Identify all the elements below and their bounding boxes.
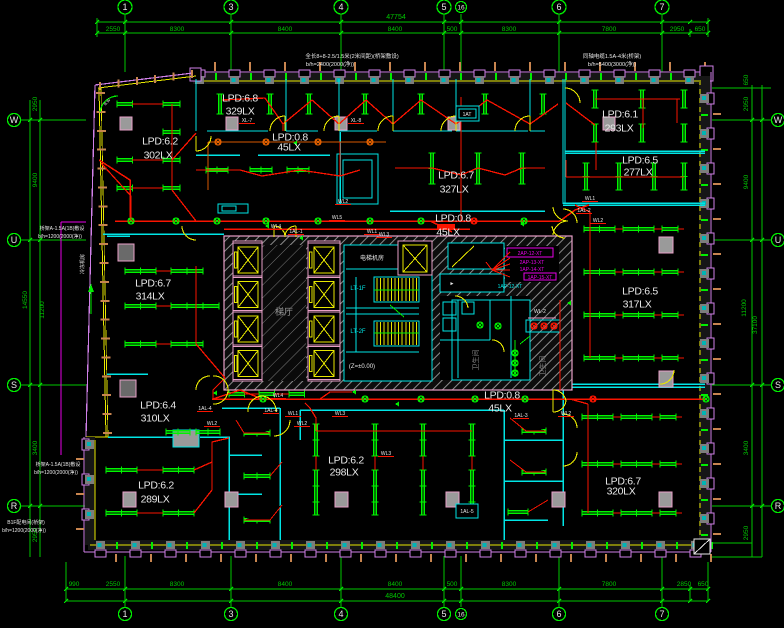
svg-text:500: 500 [447,26,458,33]
svg-text:冷冻机房: 冷冻机房 [79,254,86,274]
svg-text:4: 4 [338,2,343,12]
svg-text:14550: 14550 [22,291,29,309]
svg-text:3: 3 [228,609,233,619]
svg-text:8300: 8300 [502,581,517,588]
svg-text:U: U [11,235,18,245]
svg-text:3400: 3400 [743,440,750,455]
svg-text:310LX: 310LX [141,413,170,425]
svg-text:R: R [11,501,18,511]
svg-text:WL-2: WL-2 [534,309,546,315]
svg-text:298LX: 298LX [330,467,359,479]
svg-text:7800: 7800 [602,581,617,588]
svg-text:R: R [775,501,782,511]
svg-text:2850: 2850 [677,581,692,588]
svg-text:7: 7 [659,2,664,12]
svg-text:LPD:6.2: LPD:6.2 [138,480,174,492]
svg-text:2AP-13-XT: 2AP-13-XT [520,260,545,266]
svg-text:293LX: 293LX [605,123,634,135]
svg-text:11200: 11200 [741,299,748,317]
svg-text:全长8+8-2.5/1.5米(2米间距)(桥架敷设): 全长8+8-2.5/1.5米(2米间距)(桥架敷设) [305,52,399,60]
svg-text:B1F配电间(桥架): B1F配电间(桥架) [7,519,45,526]
svg-text:2950: 2950 [670,26,685,33]
svg-text:W: W [774,115,783,125]
svg-text:1: 1 [122,2,127,12]
svg-text:8400: 8400 [388,26,403,33]
svg-text:LPD:6.5: LPD:6.5 [622,286,658,298]
svg-text:4: 4 [338,609,343,619]
svg-text:320LX: 320LX [607,486,636,498]
svg-text:W: W [10,115,19,125]
svg-text:2950: 2950 [32,96,39,111]
svg-text:45LX: 45LX [436,227,460,239]
svg-text:同轴电缆1.5A-4米(桥架): 同轴电缆1.5A-4米(桥架) [583,52,642,60]
svg-text:2950: 2950 [743,96,750,111]
svg-text:1AT: 1AT [463,112,472,118]
svg-text:3400: 3400 [32,440,39,455]
svg-text:45LX: 45LX [488,403,512,415]
svg-text:S: S [775,380,781,390]
svg-text:2550: 2550 [106,581,121,588]
svg-text:b/h=2400(2000(净)): b/h=2400(2000(净)) [306,60,354,68]
svg-text:2550: 2550 [106,26,121,33]
svg-text:卫生间: 卫生间 [538,356,547,377]
svg-text:LT-1F: LT-1F [350,286,366,292]
svg-text:b/h=1200(2000(净)): b/h=1200(2000(净)) [2,527,46,534]
svg-text:LPD:0.8: LPD:0.8 [435,213,471,225]
svg-text:327LX: 327LX [440,184,469,196]
svg-text:LPD:6.1: LPD:6.1 [602,109,638,121]
svg-text:7800: 7800 [602,26,617,33]
svg-text:LPD:6.7: LPD:6.7 [438,170,474,182]
svg-text:650: 650 [743,74,750,85]
svg-text:S: S [11,380,17,390]
svg-text:48400: 48400 [385,593,405,600]
svg-text:11200: 11200 [39,301,46,319]
svg-text:317LX: 317LX [623,299,652,311]
svg-text:桥架A-1.5A(1B)敷设: 桥架A-1.5A(1B)敷设 [40,225,85,232]
svg-text:289LX: 289LX [141,494,170,506]
svg-text:650: 650 [698,581,709,588]
svg-text:►: ► [450,281,455,287]
svg-text:47754: 47754 [386,14,406,21]
svg-text:b/h=1200(2000(净)): b/h=1200(2000(净)) [38,233,82,240]
svg-text:1AP-14-XT: 1AP-14-XT [520,267,545,273]
svg-text:1: 1 [122,609,127,619]
svg-text:2950: 2950 [743,525,750,540]
svg-text:9400: 9400 [743,174,750,189]
svg-text:7: 7 [659,609,664,619]
svg-text:LPD:6.5: LPD:6.5 [622,155,658,167]
svg-text:6: 6 [556,2,561,12]
svg-text:8400: 8400 [278,581,293,588]
svg-text:16: 16 [457,5,465,12]
svg-text:3: 3 [228,2,233,12]
svg-text:LPD:6.2: LPD:6.2 [142,136,178,148]
svg-text:5: 5 [441,2,446,12]
svg-text:8300: 8300 [170,581,185,588]
svg-text:LPD:6.4: LPD:6.4 [140,400,176,412]
svg-text:LT-2F: LT-2F [350,329,366,335]
svg-text:5: 5 [441,609,446,619]
svg-text:b/h=5400(3000(净)): b/h=5400(3000(净)) [588,60,636,68]
svg-text:梯厅: 梯厅 [275,306,293,317]
svg-text:LPD:0.8: LPD:0.8 [484,390,520,402]
svg-text:(Z=±0.00): (Z=±0.00) [349,364,375,370]
svg-text:电梯机房: 电梯机房 [360,254,384,262]
svg-text:277LX: 277LX [624,167,653,179]
svg-text:卫生间: 卫生间 [471,350,480,371]
svg-text:990: 990 [69,581,80,588]
svg-text:1AP-15-XT: 1AP-15-XT [528,275,553,281]
svg-text:LPD:6.2: LPD:6.2 [328,455,364,467]
svg-text:16: 16 [457,612,465,619]
svg-text:302LX: 302LX [144,150,173,162]
svg-text:45LX: 45LX [277,142,301,154]
svg-text:8400: 8400 [388,581,403,588]
svg-text:1AL-5: 1AL-5 [460,509,474,515]
svg-text:2AP-12-XT: 2AP-12-XT [518,251,543,257]
svg-text:500: 500 [447,581,458,588]
svg-text:37100: 37100 [752,316,759,334]
svg-text:U: U [775,235,782,245]
svg-text:314LX: 314LX [136,291,165,303]
svg-text:LPD:6.7: LPD:6.7 [135,278,171,290]
svg-text:1AP-12-XT: 1AP-12-XT [498,284,523,290]
svg-text:8300: 8300 [502,26,517,33]
svg-text:LPD:6.8: LPD:6.8 [222,93,258,105]
svg-text:b/h=1200(2000(净)): b/h=1200(2000(净)) [34,469,78,476]
svg-text:6: 6 [556,609,561,619]
svg-text:桥架A-1.5A(1B)敷设: 桥架A-1.5A(1B)敷设 [36,461,81,468]
svg-text:650: 650 [695,26,706,33]
svg-text:9400: 9400 [32,172,39,187]
svg-text:8300: 8300 [170,26,185,33]
svg-text:8400: 8400 [278,26,293,33]
svg-text:329LX: 329LX [226,106,255,118]
